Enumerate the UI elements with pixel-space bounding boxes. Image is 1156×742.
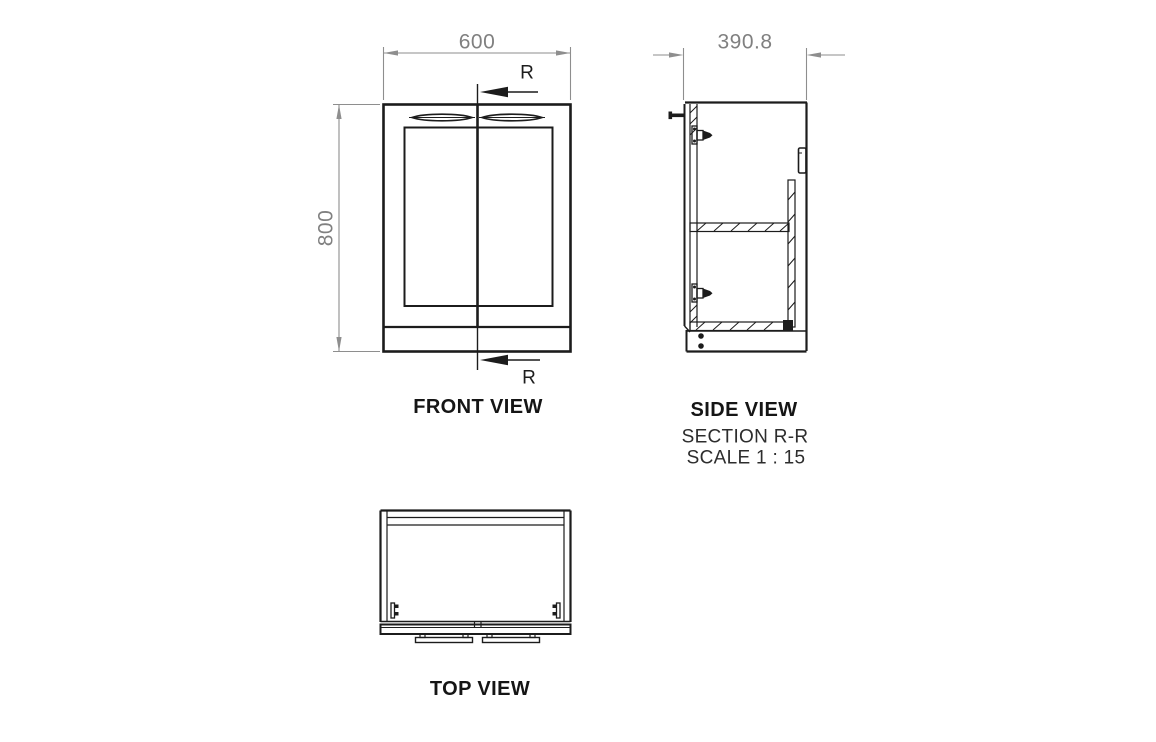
side-view-label: SIDE VIEW: [691, 400, 798, 420]
section-title: SECTION R-R: [682, 428, 809, 447]
scale-note: SCALE 1 : 15: [687, 449, 806, 468]
front-height-dim-text: 800: [316, 210, 337, 247]
side-view-drawing: [653, 48, 845, 352]
side-hinge-bottom: [692, 284, 713, 302]
top-handle-left: [416, 634, 473, 643]
top-hinge-right: [553, 603, 561, 618]
section-letter-top: R: [520, 64, 534, 83]
side-wall-bracket: [799, 148, 807, 173]
side-bottom-shelf: [690, 320, 793, 331]
side-depth-dim-text: 390.8: [717, 32, 772, 53]
side-depth-dimension: [653, 48, 845, 100]
front-view-label: FRONT VIEW: [413, 397, 543, 417]
front-width-dim-text: 600: [459, 32, 496, 53]
side-middle-shelf: [690, 223, 789, 232]
section-letter-bottom: R: [522, 369, 536, 388]
plinth-screw-hole: [698, 343, 704, 349]
front-view-drawing: [333, 47, 571, 370]
top-cabinet-outline: [381, 511, 571, 623]
top-hinge-left: [391, 603, 399, 618]
side-door-handle: [669, 112, 685, 120]
top-handle-right: [483, 634, 540, 643]
front-height-dimension: [333, 105, 380, 352]
plinth-screw-hole: [698, 333, 704, 339]
technical-drawing-canvas: 600 800 R R FRONT VIEW 390.8 SIDE VIEW S…: [0, 0, 1156, 742]
side-hinge-top: [692, 126, 713, 144]
top-view-drawing: [381, 511, 571, 643]
top-view-label: TOP VIEW: [430, 679, 530, 699]
drawing-linework: [0, 0, 1156, 742]
top-door-band: [381, 622, 571, 635]
side-back-panel: [788, 180, 795, 327]
